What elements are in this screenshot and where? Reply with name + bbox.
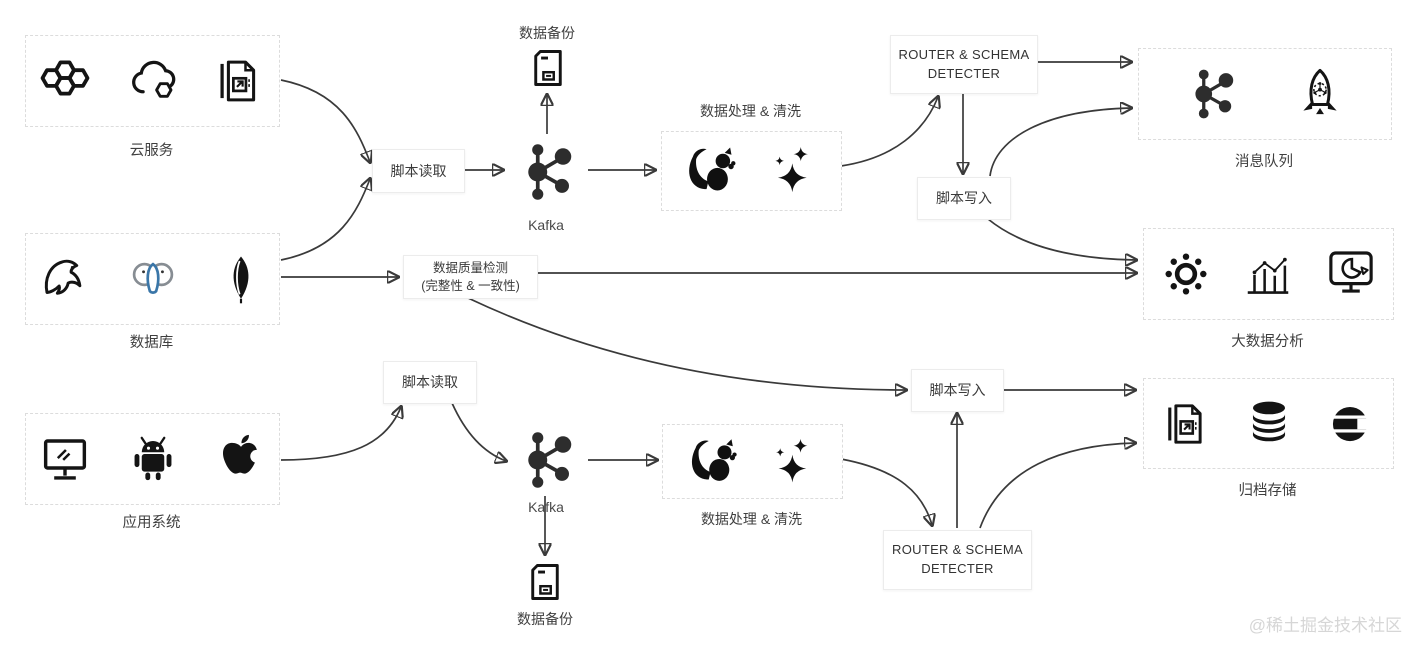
script-read-top-label: 脚本读取 [391, 161, 447, 181]
databases-label: 数据库 [25, 331, 278, 352]
cloud-icon [126, 54, 180, 108]
desktop-monitor-icon [38, 432, 92, 486]
kafka-node-icon [513, 139, 579, 205]
kafka-node-icon [1182, 65, 1240, 123]
arrow-script-write-to-mq [990, 108, 1131, 176]
router-schema-bottom-line1: ROUTER & SCHEMA [892, 541, 1023, 560]
backup-sd-card-icon [522, 559, 568, 605]
arrow-router-bottom-to-archive [980, 443, 1135, 528]
archive-label: 归档存储 [1143, 479, 1392, 500]
router-schema-top-line1: ROUTER & SCHEMA [899, 46, 1030, 65]
app-systems-group [25, 413, 280, 505]
processing-top-group [661, 131, 842, 211]
watermark: @稀土掘金技术社区 [1249, 611, 1402, 636]
database-cylinder-icon [1242, 397, 1296, 451]
apple-icon [214, 432, 268, 486]
cloud-services-group [25, 35, 280, 127]
arrow-cloud-to-script-read [281, 80, 370, 162]
kafka-bottom-label: Kafka [496, 499, 596, 515]
backup-top-label: 数据备份 [477, 23, 617, 43]
rocketmq-rocket-icon [1292, 66, 1348, 122]
bigdata-label: 大数据分析 [1143, 330, 1392, 351]
databases-group [25, 233, 280, 325]
router-schema-bottom-line2: DETECTER [921, 560, 993, 579]
kafka-node-icon [513, 427, 579, 493]
message-queue-group [1138, 48, 1392, 140]
flink-squirrel-icon [683, 142, 741, 200]
spark-sparkles-icon [767, 144, 821, 198]
script-write-top-label: 脚本写入 [936, 188, 992, 208]
script-read-bottom-box: 脚本读取 [383, 361, 477, 404]
mysql-dolphin-icon [38, 252, 92, 306]
arrow-script-write-to-bigdata [988, 219, 1136, 260]
quality-check-line1: 数据质量检测 [433, 259, 508, 277]
monitor-pie-chart-icon [1323, 246, 1379, 302]
processing-bottom-group [662, 424, 843, 499]
mongodb-leaf-icon [214, 252, 268, 306]
data-pipeline-diagram: 云服务 数据库 应用系统 脚本读取 数据备份 Kafka 数据处理 & 清洗 R… [0, 0, 1418, 648]
script-write-top-box: 脚本写入 [917, 177, 1011, 220]
android-icon [126, 432, 180, 486]
script-read-top-box: 脚本读取 [372, 149, 465, 193]
elasticsearch-icon [1324, 398, 1376, 450]
file-export-icon [1162, 398, 1214, 450]
node-cluster-icon [1159, 247, 1213, 301]
flink-squirrel-icon [686, 434, 742, 490]
script-write-bottom-label: 脚本写入 [930, 380, 986, 400]
arrow-quality-to-script-write-bottom [468, 298, 906, 390]
arrow-db-to-script-read [281, 179, 370, 260]
script-write-bottom-box: 脚本写入 [911, 369, 1004, 412]
processing-top-label: 数据处理 & 清洗 [661, 101, 840, 121]
bigdata-group [1143, 228, 1394, 320]
router-schema-bottom-box: ROUTER & SCHEMA DETECTER [883, 530, 1032, 590]
backup-bottom-label: 数据备份 [475, 609, 615, 629]
quality-check-box: 数据质量检测 (完整性 & 一致性) [403, 255, 538, 299]
arrow-processing-to-router-top [841, 97, 938, 166]
message-queue-label: 消息队列 [1138, 150, 1390, 171]
router-schema-top-box: ROUTER & SCHEMA DETECTER [890, 35, 1038, 94]
quality-check-line2: (完整性 & 一致性) [421, 277, 520, 295]
bar-line-chart-icon [1241, 247, 1295, 301]
spark-sparkles-icon [768, 436, 820, 488]
arrow-app-to-script-read-bottom [281, 407, 401, 460]
script-read-bottom-label: 脚本读取 [402, 372, 458, 392]
arrow-script-read-bottom-to-kafka [452, 403, 506, 461]
hexagon-cluster-icon [38, 54, 92, 108]
processing-bottom-label: 数据处理 & 清洗 [662, 509, 841, 529]
backup-sd-card-icon [525, 45, 571, 91]
router-schema-top-line2: DETECTER [928, 65, 1000, 84]
archive-group [1143, 378, 1394, 469]
file-export-icon [214, 54, 268, 108]
postgresql-elephant-icon [126, 252, 180, 306]
kafka-top-label: Kafka [496, 217, 596, 233]
arrow-processing-bottom-to-router [841, 459, 932, 525]
cloud-services-label: 云服务 [25, 139, 278, 160]
app-systems-label: 应用系统 [25, 511, 278, 532]
